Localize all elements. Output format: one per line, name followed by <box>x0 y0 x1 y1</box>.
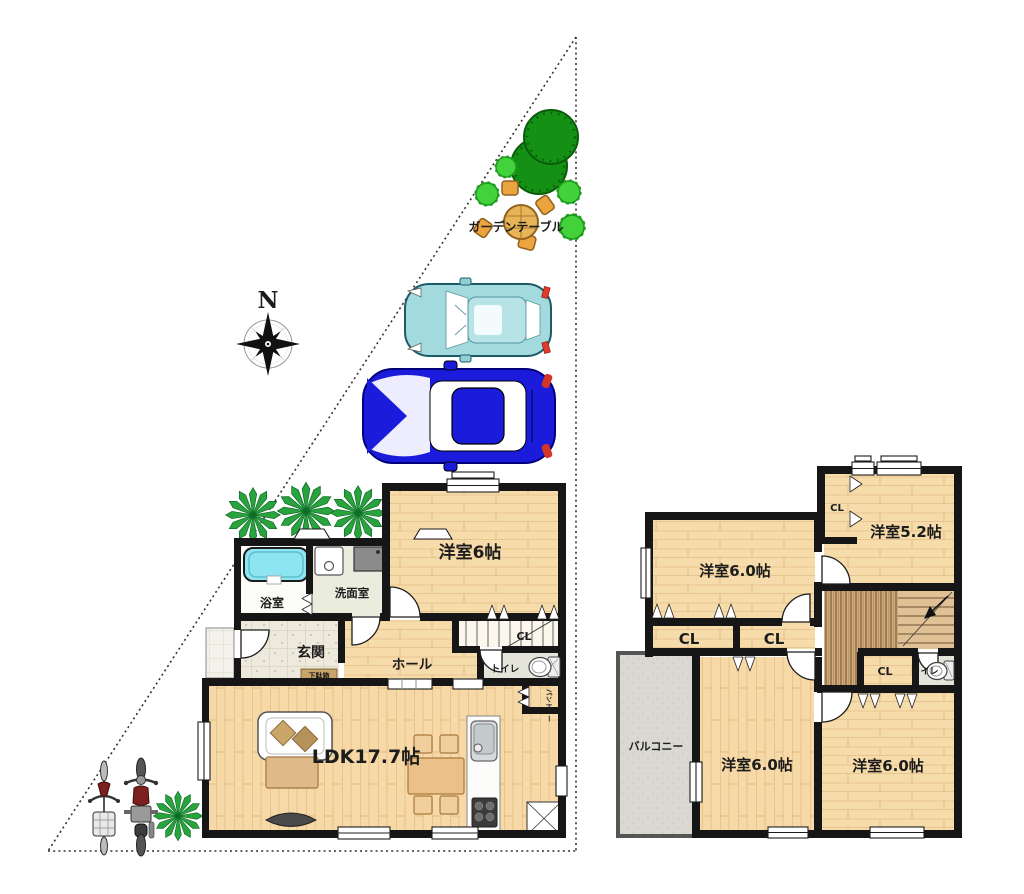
floor2-plan: 洋室6.0帖 洋室5.2帖 CL CL CL CL トイレ バルコニー 洋室6.… <box>616 456 962 838</box>
closet-top-label: CL <box>830 503 844 514</box>
closet-c-label: CL <box>877 665 892 678</box>
palm-plant-icon <box>331 486 386 541</box>
stair-treads-2f <box>898 590 955 649</box>
window <box>881 456 917 461</box>
ldk-label: LDK17.7帖 <box>312 745 420 768</box>
sliding-door <box>388 679 432 689</box>
floorplan-page: ガーデンテーブル N <box>0 0 1024 894</box>
entrance-porch <box>206 628 234 678</box>
motorcycle-icon <box>124 758 158 856</box>
window <box>294 529 330 539</box>
bush-icon <box>475 182 498 205</box>
window <box>414 529 452 539</box>
coffee-table-icon <box>266 757 318 788</box>
room-sw <box>700 657 814 830</box>
window <box>452 472 494 478</box>
kitchen-counter-icon <box>467 716 500 836</box>
bathroom-label: 浴室 <box>260 595 284 610</box>
room-se-label: 洋室6.0帖 <box>852 757 924 775</box>
car-sports-icon <box>363 361 555 471</box>
palm-plant-icon <box>226 488 281 543</box>
balcony-label: バルコニー <box>629 740 684 753</box>
shoe-cabinet-label: 下駄箱 <box>309 671 330 680</box>
entrance-label: 玄関 <box>297 644 325 661</box>
stair-landing <box>824 649 858 686</box>
window <box>855 456 871 461</box>
room-western1-label: 洋室6帖 <box>439 542 502 563</box>
sink-icon <box>315 547 343 575</box>
toilet-1f-label: トイレ <box>491 664 520 675</box>
north-label: N <box>257 287 278 314</box>
closet-1f-label: CL <box>516 630 531 643</box>
tree-icon <box>524 110 578 164</box>
bush-icon <box>557 180 580 203</box>
floorplan-svg: ガーデンテーブル N <box>0 0 1024 894</box>
garden-table-label: ガーデンテーブル <box>468 219 563 234</box>
room-ne-label: 洋室5.2帖 <box>870 523 942 541</box>
bush-icon <box>496 157 517 178</box>
stove-icon <box>472 798 497 827</box>
washroom-label: 洗面室 <box>335 586 370 600</box>
toilet-icon <box>529 657 560 677</box>
bathtub-icon <box>244 548 308 584</box>
hall-label: ホール <box>392 657 433 673</box>
closet-b-label: CL <box>764 630 785 648</box>
toilet-2f-label: トイレ <box>911 666 938 677</box>
car-compact-icon <box>405 278 551 362</box>
bicycle-icon <box>88 761 120 855</box>
sliding-door <box>453 679 483 689</box>
compass-icon <box>236 312 300 376</box>
closet-a-label: CL <box>679 630 700 648</box>
palm-plant-icon <box>153 791 202 840</box>
window <box>556 766 567 796</box>
pantry-label: パントリー <box>545 689 554 722</box>
washing-machine-icon <box>354 547 386 571</box>
garden-chair-icon <box>502 181 518 195</box>
garden-chair-icon <box>535 194 556 215</box>
room-nw-label: 洋室6.0帖 <box>699 562 771 580</box>
room-sw-label: 洋室6.0帖 <box>721 756 793 774</box>
